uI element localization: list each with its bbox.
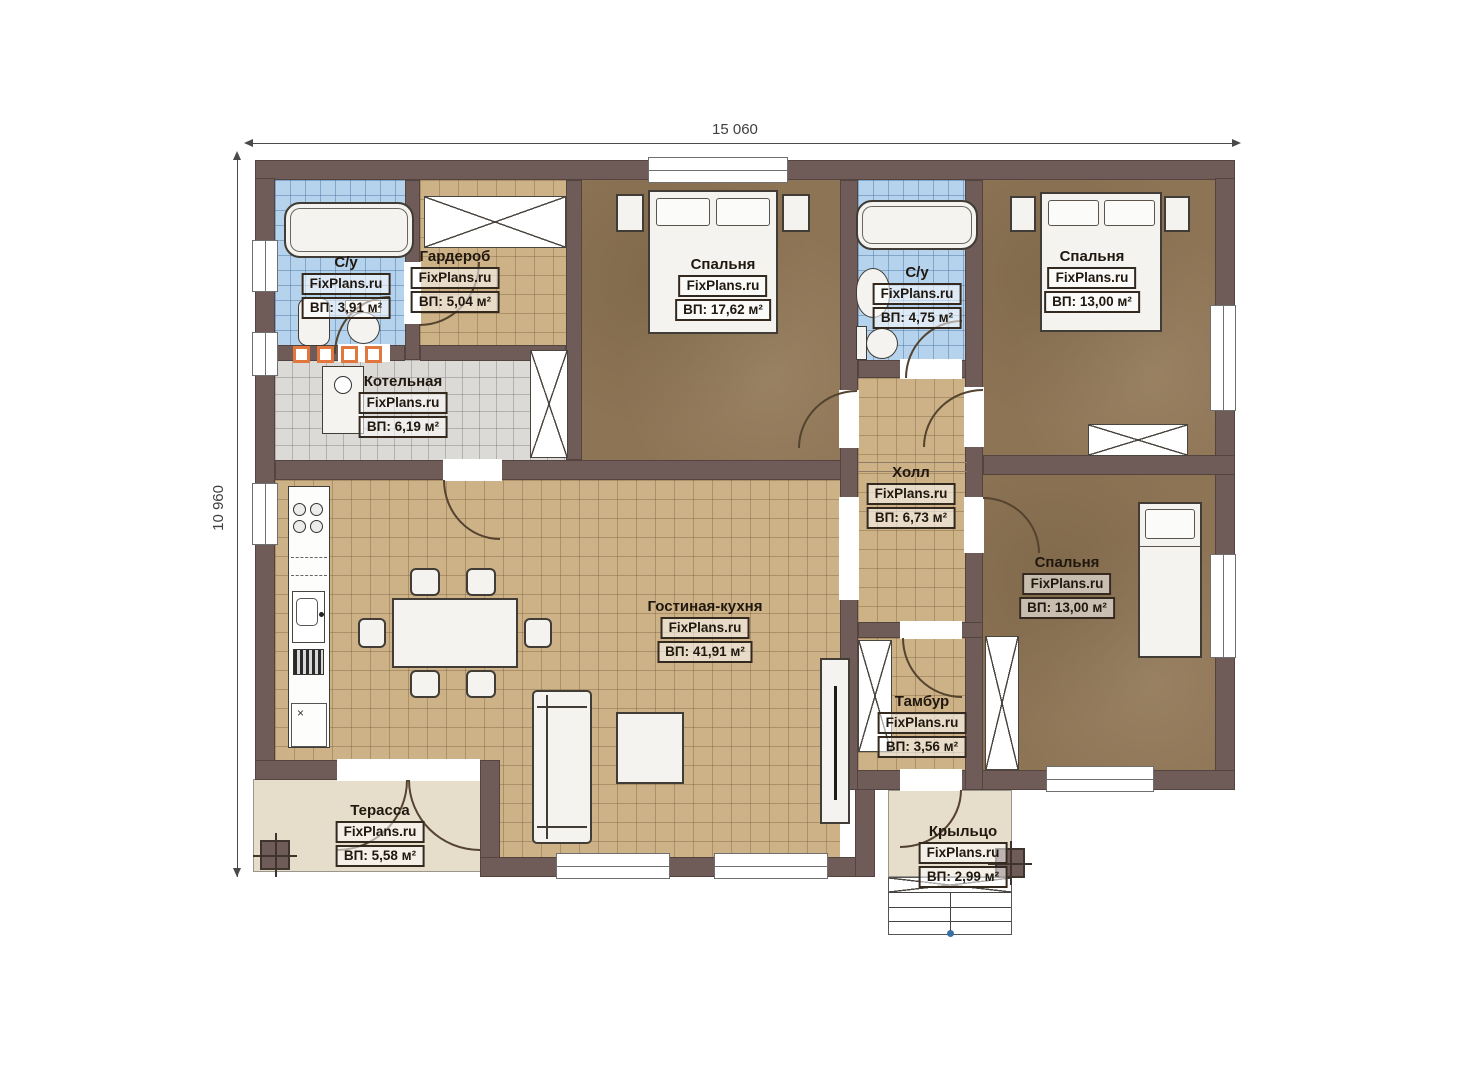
window-top-bedroom1 (648, 157, 788, 183)
window-left-bath1 (252, 240, 278, 292)
nightstand-bedroom2-left (1010, 196, 1036, 232)
sink-faucet (319, 612, 324, 617)
chair (410, 670, 440, 698)
dining-table (392, 598, 518, 668)
cabinet-cross-mark: × (297, 706, 304, 720)
doorway-tambour-hall (900, 621, 962, 639)
room-label-tambour: Тамбур FixPlans.ru ВП: 3,56 м² (878, 693, 967, 758)
room-label-wardrobe: Гардероб FixPlans.ru ВП: 5,04 м² (411, 248, 500, 313)
sink-basin (296, 598, 318, 626)
room-label-hall: Холл FixPlans.ru ВП: 6,73 м² (867, 464, 956, 529)
room-name: Спальня (1035, 554, 1100, 571)
pillow (1145, 509, 1195, 539)
kitchen-counter: × (288, 486, 330, 748)
toilet-bowl-bath2 (866, 328, 898, 359)
room-label-terrace: Терасса FixPlans.ru ВП: 5,58 м² (336, 802, 425, 867)
dimension-arrow-left (244, 139, 253, 147)
brand-watermark: FixPlans.ru (359, 392, 448, 414)
room-label-living: Гостиная-кухня FixPlans.ru ВП: 41,91 м² (648, 598, 763, 663)
cabinet-marked: × (291, 703, 327, 747)
stove-burner (293, 520, 306, 533)
room-area: ВП: 17,62 м² (675, 299, 771, 321)
room-label-bath1: С/у FixPlans.ru ВП: 3,91 м² (302, 254, 391, 319)
brand-watermark: FixPlans.ru (336, 821, 425, 843)
nightstand-bedroom1-left (616, 194, 644, 232)
brand-watermark: FixPlans.ru (411, 267, 500, 289)
room-area: ВП: 6,73 м² (867, 507, 955, 529)
doorway-terrace (337, 759, 480, 781)
room-area: ВП: 5,04 м² (411, 291, 499, 313)
dimension-width-label: 15 060 (712, 121, 758, 138)
chair (358, 618, 386, 648)
room-name: С/у (334, 254, 357, 271)
chair (524, 618, 552, 648)
pillow (1104, 200, 1155, 226)
room-area: ВП: 2,99 м² (919, 866, 1007, 888)
sofa-arm-line (537, 706, 587, 708)
pillow (716, 198, 770, 226)
room-label-bath2: С/у FixPlans.ru ВП: 4,75 м² (873, 264, 962, 329)
opening-living-hall (839, 497, 859, 600)
wall-service-bedroom1 (566, 180, 582, 460)
room-label-porch: Крыльцо FixPlans.ru ВП: 2,99 м² (919, 823, 1008, 888)
room-name: Крыльцо (929, 823, 997, 840)
doorway-bedroom3 (964, 497, 984, 553)
kitchen-sink (292, 591, 325, 643)
room-name: С/у (905, 264, 928, 281)
brand-watermark: FixPlans.ru (867, 483, 956, 505)
towel-rail-segment (317, 346, 334, 363)
tree-symbol-terrace (260, 840, 290, 870)
room-name: Холл (892, 464, 930, 481)
brand-watermark: FixPlans.ru (661, 617, 750, 639)
room-name: Гостиная-кухня (648, 598, 763, 615)
nightstand-bedroom2-right (1164, 196, 1190, 232)
room-name: Котельная (364, 373, 443, 390)
dimension-arrow-up (233, 151, 241, 160)
room-name: Гардероб (420, 248, 491, 265)
chair (466, 568, 496, 596)
window-right-bedroom3 (1210, 554, 1236, 658)
stove-burner (310, 520, 323, 533)
room-area: ВП: 5,58 м² (336, 845, 424, 867)
room-area: ВП: 3,56 м² (878, 736, 966, 758)
doorway-entry (900, 769, 962, 791)
stove-burner (293, 503, 306, 516)
nightstand-bedroom1-right (782, 194, 810, 232)
dimension-arrow-right (1232, 139, 1241, 147)
blanket-line (1140, 546, 1200, 547)
shaft-boiler (530, 350, 568, 458)
doorway-boiler (443, 459, 502, 481)
bathtub-bath1 (284, 202, 414, 258)
room-area: ВП: 4,75 м² (873, 307, 961, 329)
chair (466, 670, 496, 698)
brand-watermark: FixPlans.ru (878, 712, 967, 734)
sofa-arm-line (537, 826, 587, 828)
floor-plan: 15 060 10 960 (0, 0, 1473, 1080)
bed-bedroom3 (1138, 502, 1202, 658)
towel-rail-segment (293, 346, 310, 363)
wall-outer-right (1215, 178, 1235, 790)
window-left-living (252, 483, 278, 545)
room-name: Терасса (350, 802, 409, 819)
room-label-boiler: Котельная FixPlans.ru ВП: 6,19 м² (359, 373, 448, 438)
brand-watermark: FixPlans.ru (873, 283, 962, 305)
wall-bedrooms-divider (983, 455, 1235, 475)
window-bottom-living-1 (556, 853, 670, 879)
closet-bedroom3 (985, 636, 1019, 770)
coffee-table (616, 712, 684, 784)
boiler-dial (334, 376, 352, 394)
dimension-arrow-down (233, 868, 241, 877)
dimension-line-top (248, 143, 1237, 144)
room-label-bedroom1: Спальня FixPlans.ru ВП: 17,62 м² (675, 256, 771, 321)
window-bottom-living-2 (714, 853, 828, 879)
sofa (532, 690, 592, 844)
wall-mid-horizontal (275, 460, 858, 480)
brand-watermark: FixPlans.ru (302, 273, 391, 295)
room-name: Тамбур (895, 693, 949, 710)
chair (410, 568, 440, 596)
room-area: ВП: 13,00 м² (1044, 291, 1140, 313)
room-name: Спальня (1060, 248, 1125, 265)
dimension-line-left (237, 155, 238, 877)
bathtub-bath2 (856, 200, 978, 250)
dimension-height-label: 10 960 (210, 485, 227, 531)
window-left-boiler (252, 332, 278, 376)
brand-watermark: FixPlans.ru (1023, 573, 1112, 595)
stair-marker-dot (947, 930, 954, 937)
pillow (656, 198, 710, 226)
sofa-back-line (546, 695, 548, 839)
wall-jog-right (855, 788, 875, 877)
wall-hall-bedrooms (965, 180, 983, 790)
pillow (1048, 200, 1099, 226)
dish-rack (293, 649, 324, 675)
room-label-bedroom3: Спальня FixPlans.ru ВП: 13,00 м² (1019, 554, 1115, 619)
room-label-bedroom2: Спальня FixPlans.ru ВП: 13,00 м² (1044, 248, 1140, 313)
dresser-bedroom2 (1088, 424, 1188, 456)
brand-watermark: FixPlans.ru (1048, 267, 1137, 289)
room-area: ВП: 3,91 м² (302, 297, 390, 319)
window-bottom-bedroom3 (1046, 766, 1154, 792)
tv-screen (834, 686, 837, 800)
room-name: Спальня (691, 256, 756, 273)
room-area: ВП: 41,91 м² (657, 641, 753, 663)
closet-wardrobe-top (424, 196, 566, 248)
window-right-bedroom2 (1210, 305, 1236, 411)
counter-divider (291, 557, 327, 558)
brand-watermark: FixPlans.ru (679, 275, 768, 297)
stove-burner (310, 503, 323, 516)
brand-watermark: FixPlans.ru (919, 842, 1008, 864)
counter-divider (291, 575, 327, 576)
room-area: ВП: 13,00 м² (1019, 597, 1115, 619)
tv-stand (820, 658, 850, 824)
room-area: ВП: 6,19 м² (359, 416, 447, 438)
